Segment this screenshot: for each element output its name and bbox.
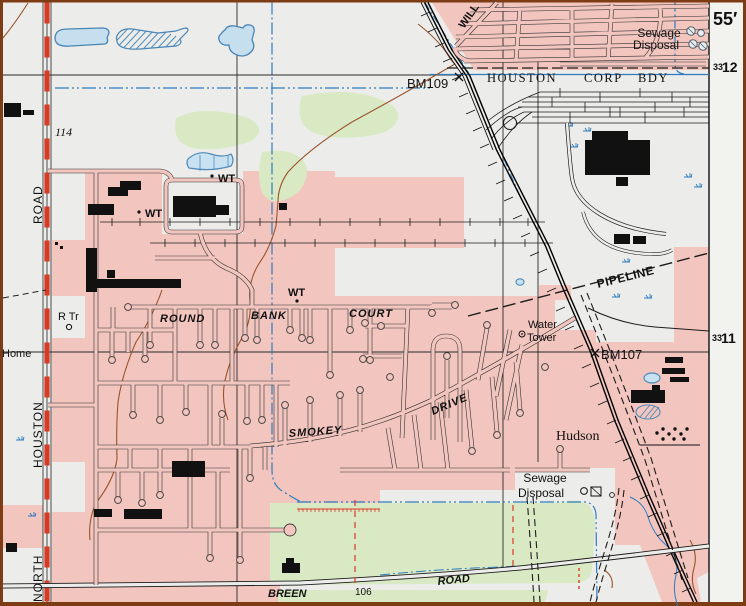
svg-text:CORP: CORP	[584, 71, 623, 85]
svg-text:114: 114	[55, 125, 72, 139]
svg-text:Disposal: Disposal	[633, 38, 679, 52]
svg-text:Home: Home	[2, 348, 31, 360]
svg-text:Disposal: Disposal	[518, 486, 564, 500]
svg-text:BM109: BM109	[407, 76, 448, 91]
svg-text:BREEN: BREEN	[268, 588, 308, 600]
svg-text:WT: WT	[288, 287, 305, 299]
svg-text:WT: WT	[218, 173, 235, 185]
svg-text:Water: Water	[528, 319, 557, 331]
svg-text:11: 11	[721, 330, 736, 346]
svg-text:Sewage: Sewage	[523, 471, 567, 485]
svg-text:ROAD: ROAD	[31, 185, 45, 224]
svg-text:HOUSTON: HOUSTON	[487, 71, 557, 85]
svg-text:BANK: BANK	[251, 310, 287, 322]
svg-text:55′: 55′	[713, 9, 737, 29]
svg-text:Hudson: Hudson	[556, 429, 600, 444]
svg-text:12: 12	[722, 59, 738, 75]
svg-text:WT: WT	[145, 208, 162, 220]
svg-text:106: 106	[355, 587, 372, 598]
svg-text:BDY: BDY	[638, 71, 669, 85]
svg-text:R Tr: R Tr	[58, 311, 79, 323]
svg-text:HOUSTON: HOUSTON	[31, 401, 45, 468]
svg-text:NORTH: NORTH	[31, 555, 45, 602]
svg-text:COURT: COURT	[349, 308, 393, 320]
svg-text:ROUND: ROUND	[160, 313, 205, 325]
svg-text:BM107: BM107	[601, 347, 642, 362]
svg-text:Tower: Tower	[527, 332, 557, 344]
